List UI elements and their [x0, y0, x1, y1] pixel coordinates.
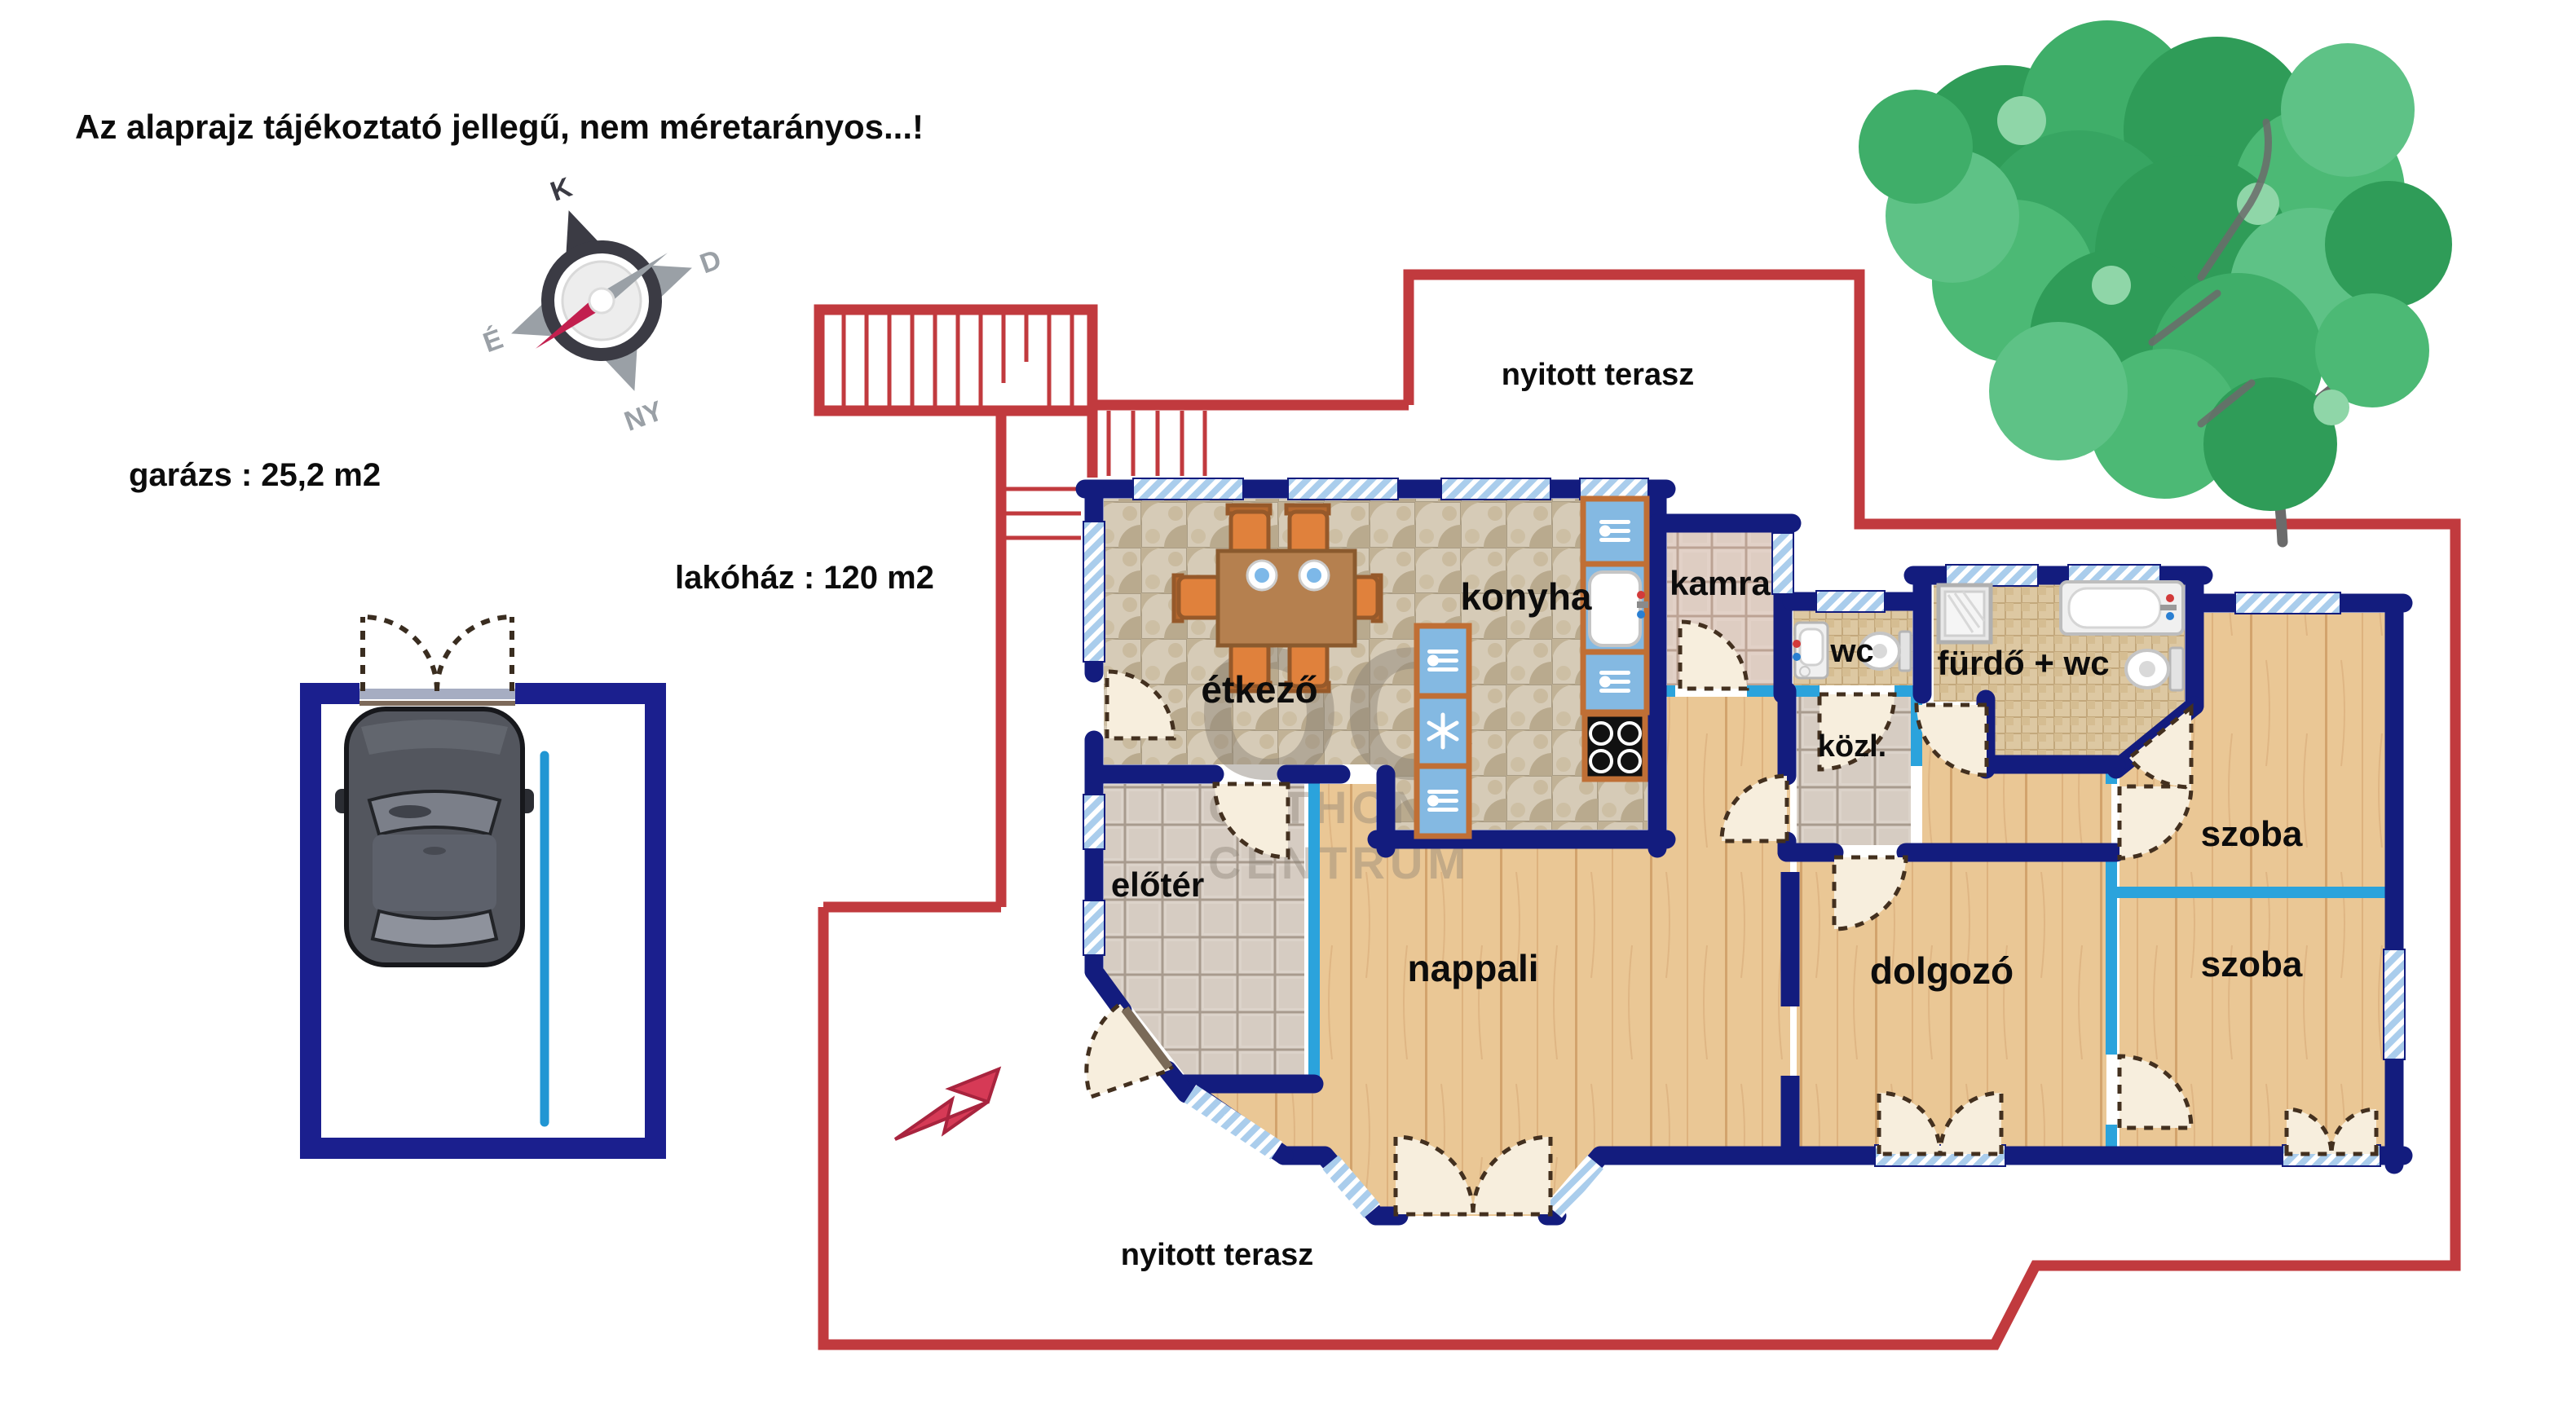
cutlery-icon	[1599, 671, 1630, 693]
car-icon	[335, 709, 534, 965]
stairs-side-flight-treads	[1109, 411, 1205, 476]
compass-icon: K D NY É	[439, 132, 767, 473]
label-eloter: előtér	[1111, 865, 1204, 904]
floor-plan-drawing: K D NY É ŐC OTTHON CENTRUM	[0, 0, 2576, 1418]
compass-right-label: D	[696, 244, 726, 280]
compass-left-label: É	[479, 324, 507, 359]
garage-area-label: garázs : 25,2 m2	[129, 457, 381, 493]
toilet-icon	[2126, 648, 2183, 690]
bathtub-icon	[2061, 582, 2183, 634]
stove-icon	[1585, 714, 1645, 779]
label-szoba1: szoba	[2201, 814, 2303, 854]
entrance-arrow-icon	[895, 1069, 999, 1139]
dining-table	[1218, 551, 1355, 645]
stairs-lower-treads	[1006, 489, 1081, 538]
label-dolgozo: dolgozó	[1870, 949, 2014, 992]
label-etkezo: étkező	[1201, 668, 1317, 711]
chair	[1179, 577, 1221, 618]
terrace-bottom-label: nyitott terasz	[1121, 1238, 1313, 1272]
garage	[311, 617, 655, 1148]
label-nappali: nappali	[1407, 947, 1538, 989]
wc-sink-icon	[1793, 623, 1828, 678]
compass-bottom-label: NY	[620, 395, 668, 438]
label-furdo: fürdő + wc	[1937, 644, 2109, 682]
disclaimer-text: Az alaprajz tájékoztató jellegű, nem mér…	[75, 108, 924, 146]
label-kamra: kamra	[1670, 564, 1771, 602]
house-area-label: lakóház : 120 m2	[675, 560, 934, 596]
terrace-top-label: nyitott terasz	[1502, 358, 1694, 392]
tree-icon	[1859, 20, 2452, 542]
garage-door-sill	[359, 701, 515, 706]
label-kozl: közl.	[1818, 729, 1886, 764]
stairs-upper-treads	[844, 315, 1072, 406]
label-szoba2: szoba	[2201, 945, 2303, 984]
cutlery-icon	[1427, 650, 1458, 672]
label-wc: wc	[1829, 633, 1873, 669]
label-konyha: konyha	[1460, 575, 1591, 618]
floor-plan-page: K D NY É ŐC OTTHON CENTRUM	[0, 0, 2576, 1418]
cutlery-icon	[1599, 520, 1630, 542]
shower-icon	[1939, 585, 1991, 642]
cutlery-icon	[1427, 790, 1458, 812]
compass-top-label: K	[546, 172, 576, 208]
sink-basin	[1590, 572, 1640, 645]
